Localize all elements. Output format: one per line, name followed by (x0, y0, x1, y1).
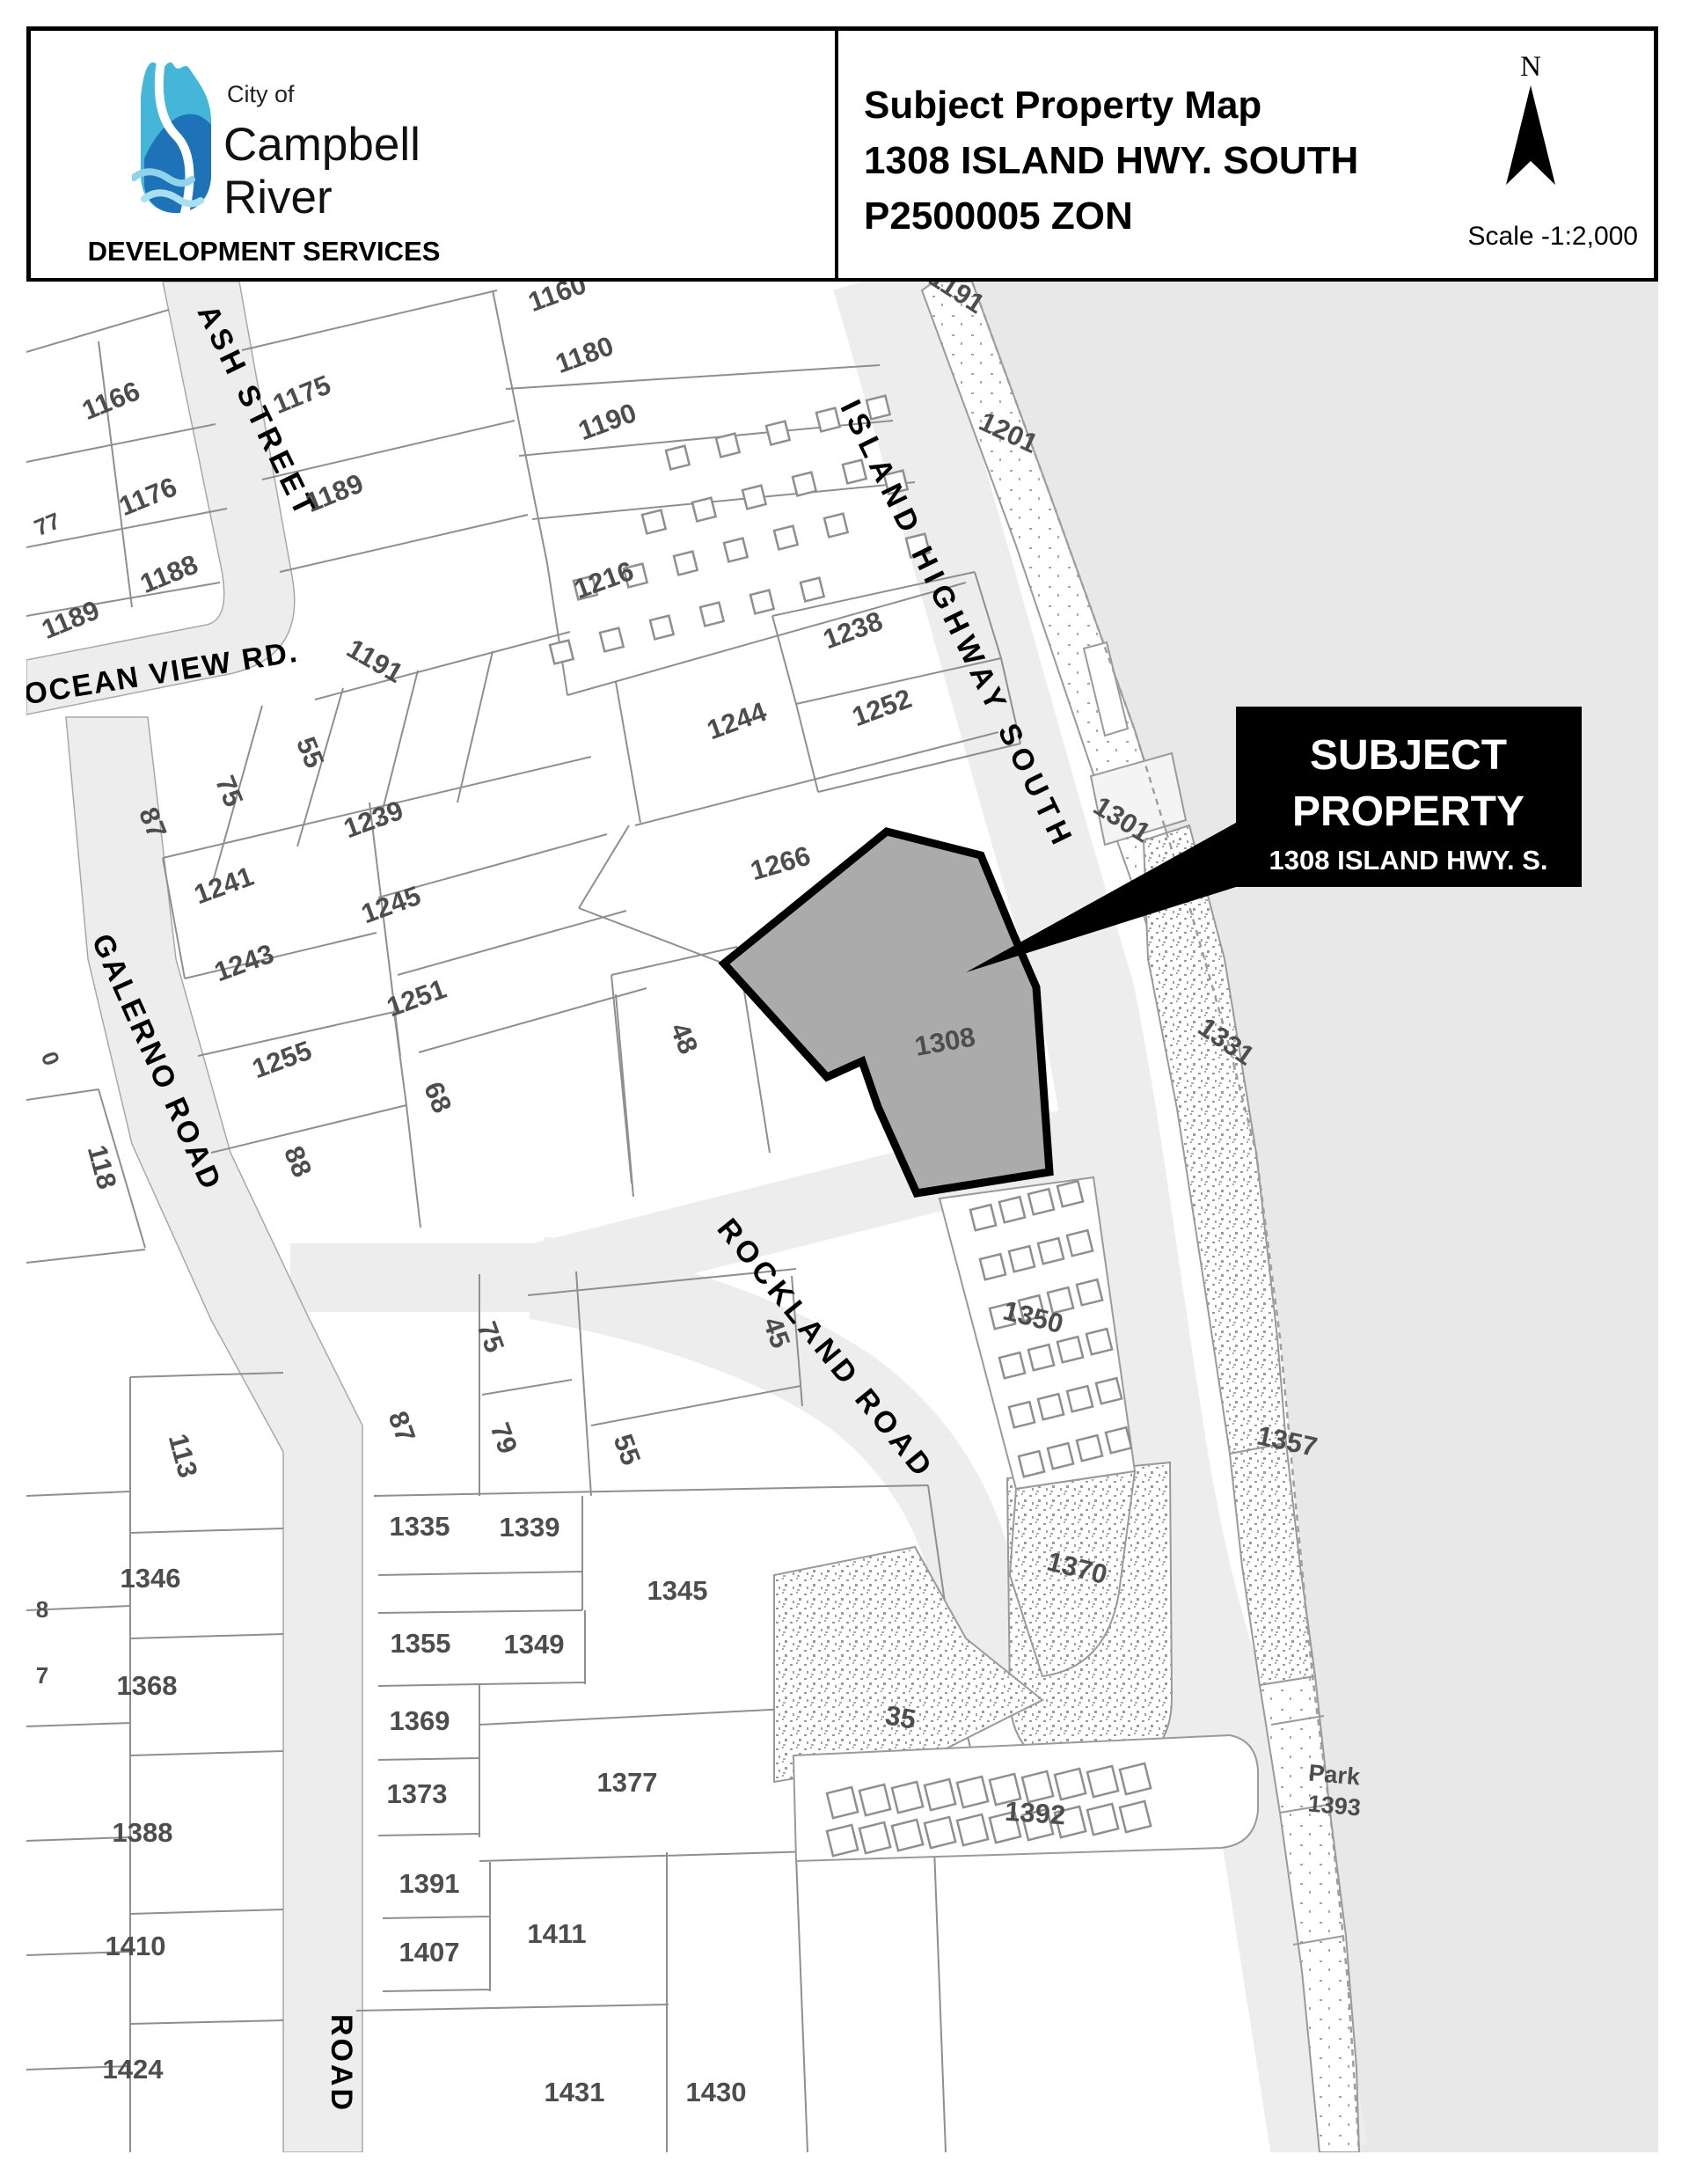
building-square (892, 1782, 923, 1813)
parcel-label-p1349: 1349 (504, 1629, 565, 1660)
building-square (1057, 1181, 1083, 1206)
building-square (1077, 1435, 1102, 1461)
building-square (859, 1822, 890, 1853)
street-label-road: ROAD (325, 2014, 358, 2113)
parcel-label-p1377: 1377 (597, 1767, 658, 1798)
building-square (957, 1814, 988, 1845)
building-square (742, 486, 766, 509)
page: City of Campbell River DEVELOPMENT SERVI… (0, 0, 1689, 2184)
parcel-label-p1335: 1335 (390, 1511, 450, 1542)
parcel-label-p1391: 1391 (399, 1868, 460, 1899)
building-square (700, 603, 724, 627)
building-square (970, 1205, 996, 1230)
building-square (750, 590, 774, 614)
building-square (1038, 1394, 1064, 1419)
building-square (827, 1787, 858, 1818)
building-square (1067, 1386, 1093, 1411)
building-square (692, 498, 716, 522)
building-square (1028, 1345, 1054, 1370)
building-square (1087, 1766, 1118, 1797)
building-square (1086, 1329, 1112, 1354)
parcel-label-p1392: 1392 (1004, 1796, 1066, 1831)
parcel-label-p1355: 1355 (391, 1628, 451, 1659)
north-arrow: N (1487, 51, 1575, 198)
building-square (642, 510, 666, 534)
building-square (1096, 1378, 1122, 1403)
callout-line3: 1308 ISLAND HWY. S. (1269, 845, 1548, 876)
parcel-label-p1345: 1345 (647, 1575, 708, 1606)
building-square (674, 552, 698, 575)
parcel-label-p1430: 1430 (686, 2077, 747, 2107)
parcel-label-p1368: 1368 (117, 1670, 178, 1701)
building-square (1120, 1801, 1151, 1832)
building-square (1009, 1402, 1035, 1427)
parcel-label-p35: 35 (883, 1699, 918, 1734)
building-square (925, 1817, 955, 1848)
building-square (824, 514, 848, 538)
building-square (957, 1777, 988, 1807)
parcel-label-p1373: 1373 (387, 1778, 448, 1809)
header-divider (835, 26, 838, 282)
building-square (1057, 1337, 1083, 1362)
callout-line1: SUBJECT (1310, 732, 1507, 779)
parcel-label-p1339: 1339 (500, 1512, 560, 1543)
building-square (550, 641, 574, 664)
map-title-line2: 1308 ISLAND HWY. SOUTH (864, 133, 1358, 188)
scale-label: Scale -1:2,000 (1372, 222, 1638, 252)
building-square (716, 434, 740, 458)
building-square (980, 1254, 1005, 1279)
building-square (999, 1352, 1025, 1378)
parcel-label-p1411: 1411 (527, 1918, 586, 1949)
building-square (1087, 1804, 1118, 1835)
building-square (859, 1785, 890, 1815)
building-square (925, 1779, 955, 1810)
north-arrow-icon (1487, 84, 1575, 194)
map-title-line1: Subject Property Map (864, 77, 1358, 133)
building-square (793, 473, 816, 496)
parcel-label-p1424: 1424 (103, 2054, 165, 2085)
building-square (1009, 1246, 1035, 1272)
building-square (1048, 1443, 1073, 1469)
building-square (766, 421, 790, 445)
parcel-label-p7: 7 (36, 1662, 48, 1689)
building-square (1028, 1189, 1054, 1214)
parcel-label-pPark: Park (1307, 1760, 1362, 1791)
building-square (1077, 1279, 1102, 1305)
building-square (999, 1197, 1025, 1222)
building-square (1106, 1427, 1131, 1453)
parcel-label-p8: 8 (36, 1596, 48, 1623)
building-square (1120, 1763, 1151, 1794)
parcel-label-p1346: 1346 (121, 1563, 181, 1594)
department-label: DEVELOPMENT SERVICES (53, 236, 475, 268)
north-label: N (1487, 51, 1575, 84)
parcel-label-p1431: 1431 (545, 2077, 605, 2107)
campbell-river-logo-icon (132, 44, 220, 229)
building-square (600, 628, 624, 652)
building-square (724, 539, 748, 562)
building-square (666, 446, 690, 470)
logo-name-line2: River (223, 171, 333, 224)
building-square (892, 1820, 923, 1851)
parcel-label-p1369: 1369 (390, 1705, 450, 1736)
logo-city-of: City of (227, 81, 295, 108)
building-square (1067, 1230, 1093, 1256)
building-square (1019, 1451, 1044, 1477)
parcel-label-p1410: 1410 (106, 1931, 166, 1961)
building-square (774, 526, 798, 550)
subject-property-map: ASH STREETOCEAN VIEW RD.GALERNO ROADISLA… (26, 282, 1658, 2152)
building-square (1055, 1769, 1086, 1799)
parcel-label-p1407: 1407 (399, 1937, 460, 1968)
map-title-block: Subject Property Map 1308 ISLAND HWY. SO… (864, 77, 1358, 244)
building-square (1038, 1238, 1064, 1264)
parcel-label-p1388: 1388 (113, 1817, 173, 1848)
building-square (827, 1825, 858, 1856)
building-square (650, 616, 674, 640)
parcel-label-p1393: 1393 (1307, 1790, 1362, 1821)
map-title-line3: P2500005 ZON (864, 188, 1358, 244)
callout-line2: PROPERTY (1292, 788, 1524, 835)
building-square (801, 578, 824, 602)
logo-name-line1: Campbell (223, 118, 420, 172)
